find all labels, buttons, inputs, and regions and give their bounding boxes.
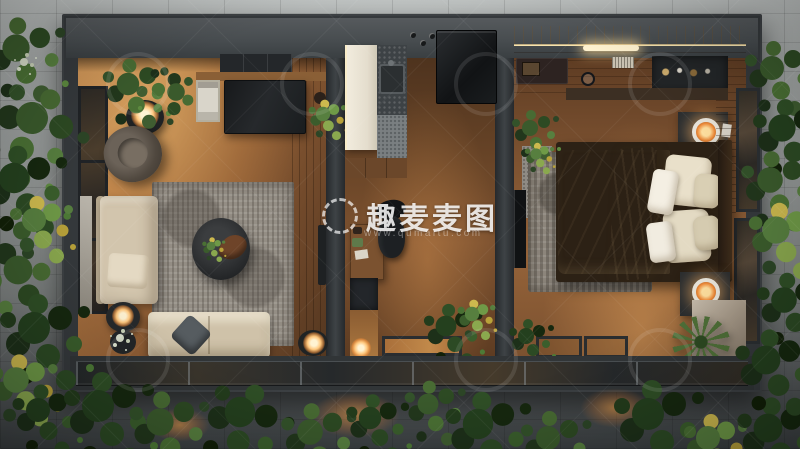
laurel-wreath-icon	[628, 52, 692, 116]
pendant-light	[429, 33, 435, 39]
planter-bench	[382, 336, 462, 356]
laurel-wreath-icon	[280, 52, 344, 116]
garden-bottom	[359, 407, 381, 429]
keyboard	[612, 57, 634, 68]
framed-art	[196, 80, 220, 122]
garden-bottom	[696, 426, 720, 449]
duvet-fold	[608, 147, 657, 281]
green-wall-left	[0, 163, 29, 193]
pendant-light	[410, 32, 416, 38]
desk-papers	[354, 249, 368, 260]
wall-sconce-glow	[351, 338, 371, 358]
indoor-planter-plants	[436, 316, 457, 337]
dark-cabinet	[350, 278, 378, 310]
corner-lamp-glow	[303, 332, 325, 354]
bedroom-window-upper	[736, 88, 760, 212]
garden-bottom	[146, 408, 173, 435]
floor-window-pane	[584, 336, 628, 358]
coffee-table-plant	[207, 242, 216, 251]
garden-bottom	[297, 419, 323, 445]
green-wall-right	[757, 167, 783, 193]
garden-light	[310, 392, 400, 438]
garden-bottom	[418, 394, 439, 415]
garden-bottom	[536, 426, 560, 449]
side-table-lamp-glow	[112, 305, 134, 327]
egg-chair-cushion	[114, 134, 152, 172]
led-bar-light	[583, 45, 639, 51]
green-wall-left	[3, 367, 29, 393]
bedroom-floor-plant	[518, 328, 534, 344]
stone-counter-lower	[377, 115, 407, 158]
green-wall-right	[752, 346, 781, 375]
green-wall-left	[4, 256, 33, 285]
watermark-url-text: www.qumaitu.com	[364, 228, 483, 239]
storage-cubes	[220, 54, 292, 73]
wall-strip	[80, 196, 92, 314]
pillow	[693, 173, 721, 209]
magnifier	[581, 72, 595, 86]
laurel-wreath-icon	[106, 52, 170, 116]
floor-window-pane	[536, 336, 582, 358]
laurel-wreath-icon	[628, 328, 692, 392]
garden-bottom	[463, 409, 493, 439]
garden-bottom	[82, 390, 114, 422]
green-wall-right	[760, 56, 784, 80]
green-wall-right	[768, 114, 795, 141]
green-wall-left	[26, 398, 50, 422]
garden-bottom	[632, 398, 664, 430]
headboard	[718, 140, 732, 280]
laurel-wreath-icon	[454, 328, 518, 392]
indoor-planter-plants	[465, 307, 479, 321]
bedroom-plant	[530, 148, 541, 159]
chaise-blanket	[107, 253, 149, 290]
green-wall-right	[771, 287, 797, 313]
pillow	[645, 220, 676, 263]
pendant-light	[420, 40, 426, 46]
kitchen-sink	[379, 64, 405, 94]
kitchen-cabinet	[345, 158, 407, 178]
door-crossbar	[80, 160, 106, 163]
bedroom-header-shelf	[514, 26, 746, 44]
green-wall-left	[18, 312, 50, 344]
watermark: 趣麦麦图 www.qumaitu.com	[318, 192, 518, 242]
bedroom-plant	[522, 120, 538, 136]
book	[522, 62, 540, 76]
green-wall-right-yellow	[762, 216, 789, 243]
laurel-wreath-icon	[454, 52, 518, 116]
garden-bottom	[754, 414, 783, 443]
laurel-wreath-icon	[322, 198, 358, 234]
kitchen-island-counter	[345, 45, 377, 150]
white-flowers	[20, 58, 28, 66]
faucet	[388, 60, 394, 66]
apartment-topdown-render: 趣麦麦图 www.qumaitu.com	[0, 0, 800, 449]
green-wall-left	[22, 208, 46, 232]
laurel-wreath-icon	[106, 328, 170, 392]
